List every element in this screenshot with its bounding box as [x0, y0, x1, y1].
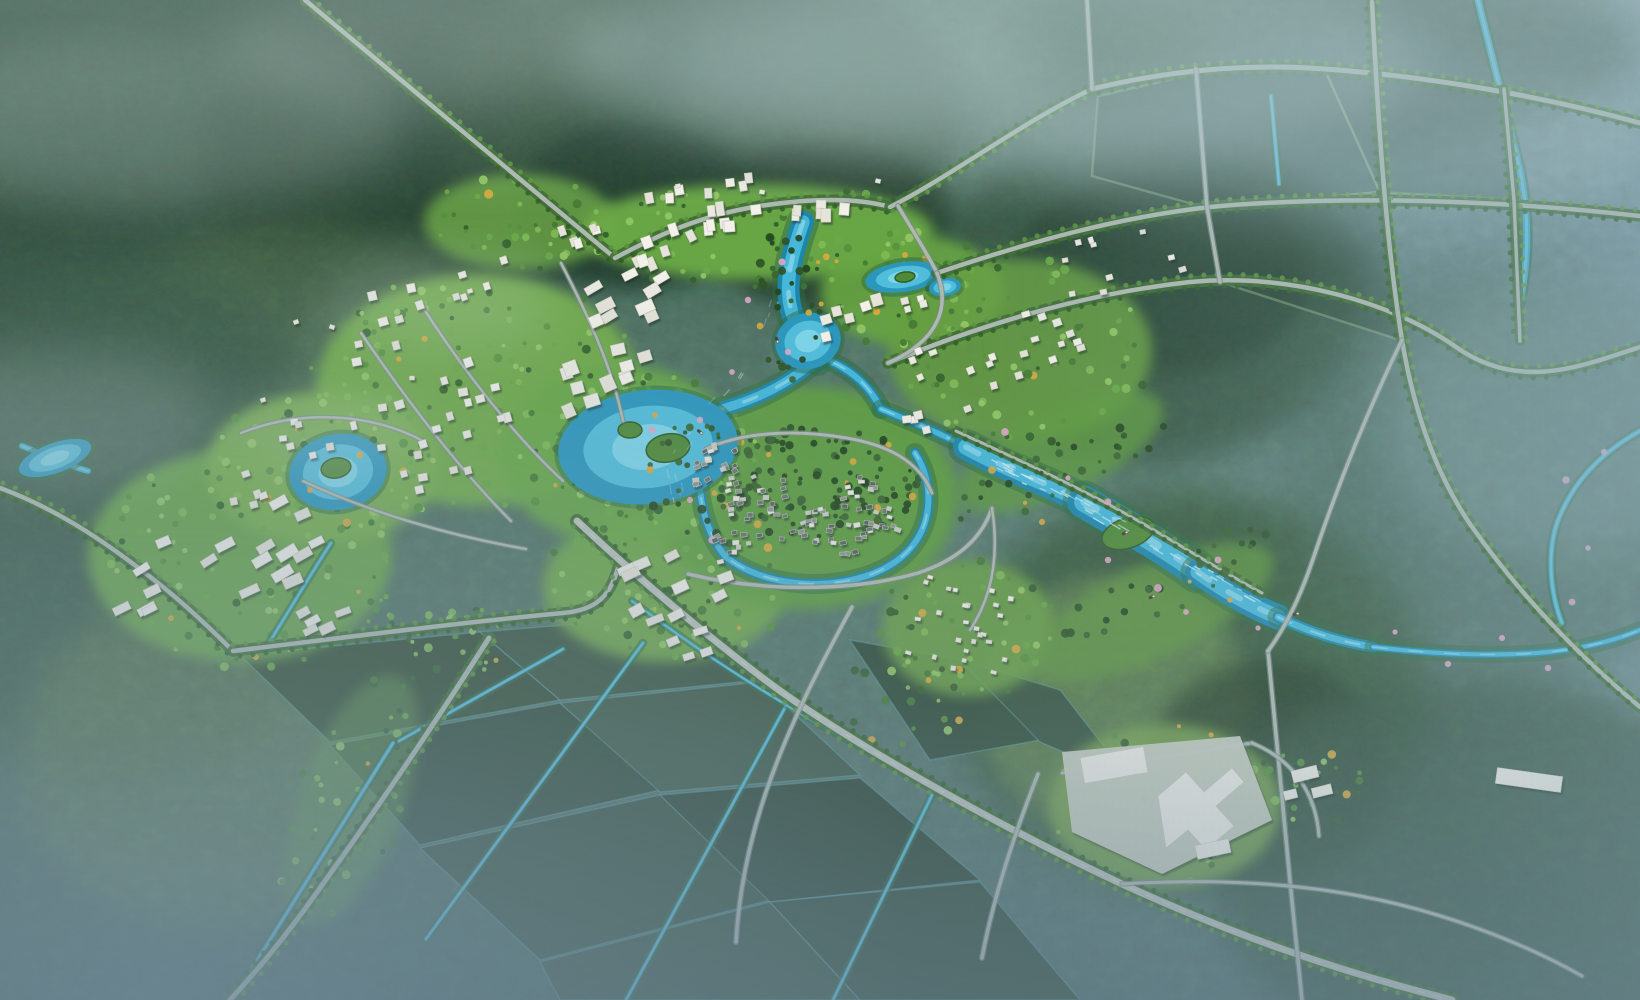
atmosphere-haze-layer: [0, 0, 1640, 1000]
aerial-masterplan-rendering: [0, 0, 1640, 1000]
masterplan-canvas: [0, 0, 1640, 1000]
bottom-mist: [0, 0, 1640, 1000]
